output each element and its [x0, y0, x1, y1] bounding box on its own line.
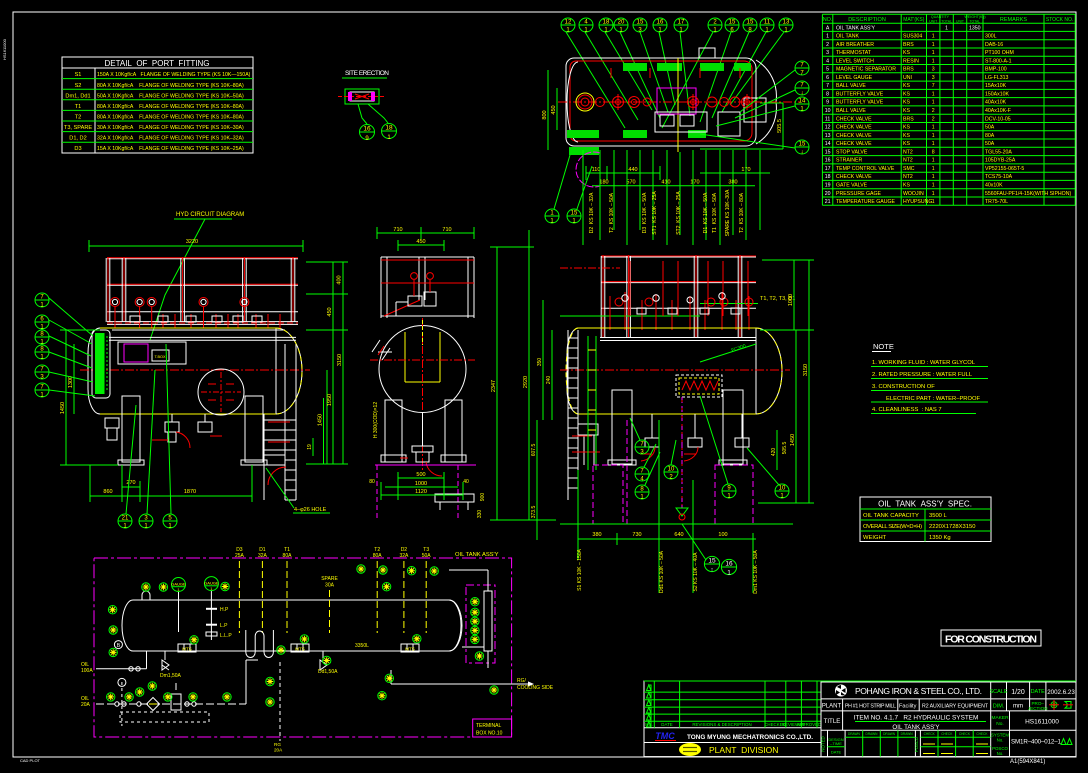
- svg-text:MAGNETIC SEPARATOR: MAGNETIC SEPARATOR: [836, 67, 896, 73]
- svg-text:NO.: NO.: [645, 722, 653, 727]
- svg-text:MTS: MTS: [295, 647, 305, 652]
- svg-text:3150: 3150: [803, 364, 809, 376]
- svg-text:1120: 1120: [415, 489, 427, 495]
- svg-text:2. RATED PRESSURE : WATER FULL: 2. RATED PRESSURE : WATER FULL: [872, 372, 973, 378]
- svg-text:14: 14: [825, 141, 831, 147]
- svg-text:150Ax10K: 150Ax10K: [985, 91, 1009, 97]
- svg-text:CHECK: CHECK: [924, 732, 936, 736]
- svg-text:4. CLEANLINESS : NAS 7: 4. CLEANLINESS : NAS 7: [872, 407, 942, 413]
- svg-text:CHECK: CHECK: [959, 732, 971, 736]
- svg-text:1950: 1950: [327, 394, 333, 406]
- svg-text:15: 15: [729, 20, 736, 26]
- svg-text:NT2: NT2: [903, 174, 913, 180]
- svg-text:UNIT: UNIT: [956, 20, 964, 24]
- svg-text:400: 400: [337, 275, 343, 284]
- svg-text:15: 15: [708, 558, 716, 565]
- svg-text:80: 80: [369, 479, 375, 485]
- svg-text:3: 3: [826, 50, 829, 56]
- svg-text:DRAWN: DRAWN: [866, 732, 879, 736]
- svg-text:80A: 80A: [283, 553, 293, 559]
- svg-text:800: 800: [542, 110, 548, 119]
- svg-text:3500 L: 3500 L: [929, 513, 948, 519]
- svg-text:BRS: BRS: [903, 67, 914, 73]
- svg-text:BUTTERFLY VALVE: BUTTERFLY VALVE: [836, 91, 884, 97]
- svg-text:1350: 1350: [969, 25, 981, 31]
- svg-text:SITE ERECTION: SITE ERECTION: [345, 70, 389, 77]
- svg-text:D1 KS 10K – 50A: D1 KS 10K – 50A: [703, 192, 709, 233]
- svg-text:ITEM NO. 4.1.7 R2 HYDRAULIC: ITEM NO. 4.1.7 R2 HYDRAULIC SYSTEM: [854, 715, 979, 722]
- svg-text:KS: KS: [903, 141, 910, 147]
- svg-text:373.5: 373.5: [531, 506, 537, 519]
- svg-text:13: 13: [825, 133, 831, 139]
- svg-text:DCV-10-05: DCV-10-05: [985, 116, 1011, 122]
- svg-text:STRAINER: STRAINER: [836, 158, 862, 164]
- svg-text:1: 1: [826, 34, 829, 40]
- svg-text:1. WORKING FLUID : WATER GLYCO: 1. WORKING FLUID : WATER GLYCOL: [872, 360, 976, 366]
- svg-text:RG: RG: [274, 742, 281, 747]
- svg-text:2: 2: [932, 116, 935, 122]
- svg-text:1: 1: [932, 158, 935, 164]
- svg-text:OIL TANK: OIL TANK: [836, 34, 860, 40]
- svg-text:40: 40: [463, 479, 469, 485]
- svg-text:mm: mm: [1013, 704, 1023, 710]
- svg-text:NO.: NO.: [823, 17, 833, 23]
- svg-text:640: 640: [674, 532, 683, 538]
- svg-text:QUANTITY: QUANTITY: [931, 15, 950, 19]
- svg-text:21: 21: [122, 516, 129, 522]
- svg-text:HYD CIRCUIT DIAGRAM: HYD CIRCUIT DIAGRAM: [176, 212, 244, 218]
- svg-text:KS: KS: [903, 133, 910, 139]
- svg-text:20: 20: [825, 191, 831, 197]
- svg-text:S2 KS 10K – 40A: S2 KS 10K – 40A: [693, 552, 699, 592]
- svg-text:DATE: DATE: [1031, 689, 1046, 695]
- svg-text:3350L: 3350L: [355, 643, 369, 649]
- svg-text:1: 1: [932, 50, 935, 56]
- svg-text:Dd1 KS 10K – 50A: Dd1 KS 10K – 50A: [659, 550, 665, 593]
- svg-text:1870: 1870: [184, 489, 196, 495]
- svg-text:1: 1: [932, 141, 935, 147]
- svg-text:2347: 2347: [491, 380, 497, 392]
- svg-text:DAB-16: DAB-16: [985, 42, 1003, 48]
- svg-text:80A: 80A: [373, 553, 383, 559]
- svg-text:UNIT: UNIT: [929, 20, 937, 24]
- svg-text:15: 15: [747, 20, 754, 26]
- svg-text:607.5: 607.5: [531, 444, 537, 457]
- svg-text:10: 10: [779, 486, 786, 492]
- svg-text:18: 18: [603, 20, 610, 26]
- svg-text:30A: 30A: [325, 583, 335, 589]
- svg-text:7: 7: [932, 83, 935, 89]
- svg-text:32A: 32A: [258, 553, 268, 559]
- svg-text:ST2 KS 10K – 25A: ST2 KS 10K – 25A: [676, 191, 682, 235]
- svg-text:2220X1728X3150: 2220X1728X3150: [929, 524, 975, 530]
- svg-text:TMC: TMC: [655, 731, 675, 741]
- svg-text:POSCO: POSCO: [914, 736, 919, 752]
- svg-text:OIL TANK ASS'Y: OIL TANK ASS'Y: [892, 724, 939, 731]
- svg-text:13: 13: [783, 20, 790, 26]
- svg-text:1: 1: [932, 42, 935, 48]
- svg-text:SM1R–400–012–1: SM1R–400–012–1: [1011, 739, 1062, 746]
- svg-text:D1, D2: D1, D2: [69, 136, 86, 142]
- svg-text:OIL TANK CAPACITY: OIL TANK CAPACITY: [863, 513, 919, 519]
- svg-text:100: 100: [718, 532, 727, 538]
- svg-text:PLANT DIVISION: PLANT DIVISION: [709, 745, 778, 755]
- svg-text:SPARE: SPARE: [321, 576, 338, 582]
- svg-text:T2: T2: [75, 115, 82, 121]
- svg-text:20A: 20A: [274, 748, 283, 753]
- svg-text:1: 1: [727, 570, 731, 577]
- svg-text:1: 1: [932, 125, 935, 131]
- svg-text:WOOJIN: WOOJIN: [903, 191, 924, 197]
- svg-text:A: A: [826, 25, 830, 31]
- svg-text:1: 1: [932, 34, 935, 40]
- svg-text:DRAWN: DRAWN: [883, 732, 896, 736]
- svg-text:500: 500: [416, 472, 425, 478]
- svg-text:REVISIONS & DESCRIPTION: REVISIONS & DESCRIPTION: [692, 722, 751, 727]
- svg-text:1: 1: [932, 191, 935, 197]
- svg-text:NOTE: NOTE: [873, 342, 894, 351]
- svg-text:1: 1: [932, 133, 935, 139]
- svg-text:OIL TANK ASS'Y: OIL TANK ASS'Y: [455, 552, 499, 558]
- svg-text:BRS: BRS: [903, 42, 914, 48]
- svg-text:1: 1: [932, 183, 935, 189]
- svg-text:THERMOSTAT: THERMOSTAT: [836, 50, 872, 56]
- svg-text:450: 450: [327, 307, 333, 316]
- svg-text:Dm1, Dd1: Dm1, Dd1: [65, 94, 90, 100]
- svg-text:2: 2: [826, 42, 829, 48]
- svg-text:T1 KS 10K – 50A: T1 KS 10K – 50A: [712, 192, 718, 233]
- svg-text:RESIN: RESIN: [903, 58, 919, 64]
- svg-text:18: 18: [825, 174, 831, 180]
- svg-text:KS: KS: [903, 100, 910, 106]
- svg-text:TONG MYUNG MECHATRONICS CO.,LT: TONG MYUNG MECHATRONICS CO.,LTD.: [687, 734, 813, 741]
- svg-text:KS: KS: [903, 91, 910, 97]
- svg-text:505.5: 505.5: [782, 442, 788, 455]
- svg-text:TOTAL: TOTAL: [969, 20, 980, 24]
- svg-text:T.BOX: T.BOX: [155, 355, 166, 359]
- svg-text:16: 16: [825, 158, 831, 164]
- svg-text:NT2: NT2: [903, 158, 913, 164]
- svg-text:420: 420: [771, 448, 777, 457]
- svg-text:CHECK VALVE: CHECK VALVE: [836, 125, 872, 131]
- svg-text:270: 270: [126, 480, 135, 486]
- svg-text:5560FAU-PF1/4-15K(WITH SIPHON): 5560FAU-PF1/4-15K(WITH SIPHON): [985, 191, 1071, 197]
- svg-text:40Ax10K: 40Ax10K: [985, 100, 1007, 106]
- svg-text:50A: 50A: [422, 553, 432, 559]
- svg-text:TITLE: TITLE: [824, 718, 841, 725]
- svg-text:L.L.P: L.L.P: [220, 633, 232, 639]
- svg-text:CHECK: CHECK: [976, 732, 988, 736]
- svg-text:1: 1: [932, 174, 935, 180]
- svg-text:19: 19: [307, 444, 313, 450]
- svg-text:BALL VALVE: BALL VALVE: [836, 83, 866, 89]
- svg-text:570: 570: [626, 180, 635, 186]
- svg-text:ST1 KS 10K – 25A: ST1 KS 10K – 25A: [652, 191, 658, 235]
- svg-text:150A X 10Kgf/cA FLANGE OF WE: 150A X 10Kgf/cA FLANGE OF WELDING TYPE (…: [97, 72, 251, 78]
- svg-text:860: 860: [103, 489, 112, 495]
- svg-text:POHANG IRON & STEEL CO., LTD.: POHANG IRON & STEEL CO., LTD.: [855, 686, 982, 696]
- svg-text:2920: 2920: [523, 376, 529, 388]
- svg-text:32A X 10Kgf/cA FLANGE OF WE: 32A X 10Kgf/cA FLANGE OF WELDING TYPE (K…: [97, 136, 244, 142]
- svg-text:R2 AUXILIARY EQUIPMENT: R2 AUXILIARY EQUIPMENT: [922, 704, 989, 710]
- svg-text:No.: No.: [996, 721, 1003, 727]
- svg-text:APPROVED: APPROVED: [797, 722, 821, 727]
- svg-text:80A X 10Kgf/cA FLANGE OF WE: 80A X 10Kgf/cA FLANGE OF WELDING TYPE (K…: [97, 104, 244, 110]
- svg-text:OIL TANK ASS'Y SPEC.: OIL TANK ASS'Y SPEC.: [878, 500, 972, 509]
- svg-text:440: 440: [628, 167, 637, 173]
- svg-text:KS: KS: [903, 125, 910, 131]
- svg-text:PT100 OHM: PT100 OHM: [985, 50, 1014, 56]
- svg-text:350: 350: [537, 358, 543, 367]
- svg-text:25A: 25A: [235, 553, 245, 559]
- svg-text:CHECK: CHECK: [941, 732, 953, 736]
- svg-text:S1 KS 10K – 150A: S1 KS 10K – 150A: [577, 548, 583, 590]
- svg-text:105DYB-25A: 105DYB-25A: [985, 158, 1016, 164]
- svg-text:40Ax10K-F: 40Ax10K-F: [985, 108, 1011, 114]
- svg-text:50A X 10Kgf/cA FLANGE OF WE: 50A X 10Kgf/cA FLANGE OF WELDING TYPE (K…: [97, 94, 244, 100]
- svg-text:19: 19: [825, 183, 831, 189]
- svg-text:KS: KS: [903, 108, 910, 114]
- svg-text:1: 1: [932, 91, 935, 97]
- svg-text:MTS: MTS: [405, 647, 415, 652]
- svg-text:10: 10: [668, 467, 675, 473]
- svg-text:180: 180: [599, 180, 608, 186]
- svg-text:80A X 10Kgf/cA FLANGE OF WE: 80A X 10Kgf/cA FLANGE OF WELDING TYPE (K…: [97, 115, 244, 121]
- svg-text:16: 16: [657, 20, 664, 26]
- svg-text:Facility: Facility: [899, 704, 917, 710]
- svg-text:1450: 1450: [60, 402, 66, 414]
- svg-text:MTS: MTS: [182, 647, 192, 652]
- svg-text:410: 410: [661, 180, 670, 186]
- svg-text:CHECK VALVE: CHECK VALVE: [836, 141, 872, 147]
- svg-text:Dm1 KS 10K – 50A: Dm1 KS 10K – 50A: [753, 550, 759, 594]
- svg-text:D3 KS 10K – 50A: D3 KS 10K – 50A: [642, 192, 648, 233]
- svg-text:DIM.: DIM.: [993, 704, 1005, 710]
- svg-text:KS: KS: [903, 83, 910, 89]
- svg-text:170: 170: [690, 180, 699, 186]
- svg-text:DATE: DATE: [661, 722, 672, 727]
- svg-text:1: 1: [932, 199, 935, 205]
- svg-text:21: 21: [825, 199, 831, 205]
- svg-text:WEIGHT(Kg): WEIGHT(Kg): [964, 15, 985, 19]
- svg-text:SCALE: SCALE: [989, 689, 1007, 695]
- svg-text:SPARE KS 10K–30A: SPARE KS 10K–30A: [725, 189, 731, 236]
- svg-text:450: 450: [551, 105, 557, 114]
- svg-text:1450: 1450: [318, 414, 324, 426]
- svg-text:240: 240: [546, 376, 552, 385]
- svg-text:T3, SPARE: T3, SPARE: [64, 125, 92, 131]
- svg-text:ST-800-A-1: ST-800-A-1: [985, 58, 1012, 64]
- svg-text:330: 330: [477, 510, 483, 519]
- svg-text:KS: KS: [903, 183, 910, 189]
- svg-text:KS: KS: [903, 50, 910, 56]
- svg-text:S2: S2: [75, 83, 82, 89]
- svg-text:16: 16: [363, 126, 371, 133]
- svg-text:TCS75-10A: TCS75-10A: [985, 174, 1013, 180]
- svg-text:1450: 1450: [790, 434, 796, 446]
- svg-text:50A: 50A: [985, 125, 995, 131]
- svg-text:9: 9: [826, 100, 829, 106]
- svg-text:3: 3: [932, 75, 935, 81]
- svg-text:WEIGHT: WEIGHT: [863, 535, 887, 541]
- svg-text:CHECK VALVE: CHECK VALVE: [836, 174, 872, 180]
- svg-text:30A X 10Kgf/cA FLANGE OF WE: 30A X 10Kgf/cA FLANGE OF WELDING TYPE (K…: [97, 125, 244, 131]
- svg-text:100A: 100A: [81, 668, 93, 674]
- svg-text:STOP VALVE: STOP VALVE: [836, 149, 868, 155]
- svg-text:A1(594X841): A1(594X841): [1010, 759, 1045, 765]
- svg-text:BRS: BRS: [903, 116, 914, 122]
- svg-text:3. CONSTRUCTION OF: 3. CONSTRUCTION OF: [872, 384, 935, 390]
- svg-text:COOLING SIDE: COOLING SIDE: [517, 685, 554, 691]
- svg-text:NOTED: NOTED: [821, 736, 826, 751]
- svg-text:20A: 20A: [81, 702, 91, 708]
- svg-text:8: 8: [826, 91, 829, 97]
- svg-text:17: 17: [825, 166, 831, 172]
- svg-text:2002.6.23: 2002.6.23: [1047, 689, 1075, 696]
- svg-text:T2 KS 10K – 80A: T2 KS 10K – 80A: [739, 192, 745, 233]
- svg-text:ELECTRIC PART : WATER–PROOF: ELECTRIC PART : WATER–PROOF: [886, 396, 981, 402]
- svg-text:10: 10: [825, 108, 831, 114]
- svg-text:S1: S1: [75, 72, 82, 78]
- svg-text:4–φ26 HOLE: 4–φ26 HOLE: [294, 507, 327, 513]
- svg-text:CHECK VALVE: CHECK VALVE: [836, 116, 872, 122]
- svg-text:TEMPERATURE GAUGE: TEMPERATURE GAUGE: [836, 199, 896, 205]
- svg-text:3: 3: [932, 67, 935, 73]
- svg-text:T2 KS 10K – 50A: T2 KS 10K – 50A: [609, 192, 615, 233]
- svg-text:LEVEL SWITCH: LEVEL SWITCH: [836, 58, 874, 64]
- svg-text:12: 12: [565, 20, 572, 26]
- svg-text:50A: 50A: [985, 141, 995, 147]
- svg-text:HS1611000: HS1611000: [2, 38, 7, 60]
- svg-text:RG/: RG/: [517, 678, 527, 684]
- svg-text:6: 6: [826, 75, 829, 81]
- svg-text:1: 1: [932, 166, 935, 172]
- svg-text:15Ax10K: 15Ax10K: [985, 83, 1007, 89]
- svg-text:TERMINAL: TERMINAL: [476, 723, 502, 729]
- svg-text:LG-FL313: LG-FL313: [985, 75, 1008, 81]
- svg-text:110: 110: [592, 167, 601, 173]
- svg-text:GAUGE: GAUGE: [171, 582, 186, 587]
- svg-text:BALL VALVE: BALL VALVE: [836, 108, 866, 114]
- svg-text:20: 20: [618, 20, 625, 26]
- svg-text:HS1611000: HS1611000: [1025, 719, 1059, 726]
- svg-text:16: 16: [725, 561, 733, 568]
- svg-text:15: 15: [825, 149, 831, 155]
- svg-text:TR75-70L: TR75-70L: [985, 199, 1008, 205]
- svg-text:11: 11: [825, 116, 830, 122]
- svg-text:80A: 80A: [985, 133, 995, 139]
- svg-text:3150: 3150: [337, 354, 343, 366]
- svg-text:CAD PLOT: CAD PLOT: [20, 758, 41, 763]
- svg-text:SUS304: SUS304: [903, 34, 922, 40]
- svg-text:15A X 10Kgf/cA FLANGE OF WE: 15A X 10Kgf/cA FLANGE OF WELDING TYPE (K…: [97, 146, 244, 152]
- svg-text:80A X 10Kgf/cA FLANGE OF WE: 80A X 10Kgf/cA FLANGE OF WELDING TYPE (K…: [97, 83, 244, 89]
- svg-text:UNI: UNI: [903, 75, 912, 81]
- svg-text:14: 14: [799, 99, 806, 105]
- svg-text:No.: No.: [997, 738, 1004, 743]
- svg-text:15: 15: [799, 142, 806, 148]
- svg-text:BOX NO.10: BOX NO.10: [476, 731, 503, 737]
- svg-text:11: 11: [764, 20, 771, 26]
- svg-text:730: 730: [632, 532, 641, 538]
- svg-text:TGL55-20A: TGL55-20A: [985, 149, 1012, 155]
- svg-text:Dm1,50A: Dm1,50A: [160, 673, 182, 679]
- svg-text:L.P: L.P: [220, 623, 228, 629]
- svg-text:D3: D3: [74, 146, 81, 152]
- svg-text:MAT'(KS): MAT'(KS): [903, 17, 924, 23]
- svg-text:PLANT: PLANT: [822, 704, 842, 710]
- svg-text:STOCK NO.: STOCK NO.: [1046, 17, 1073, 23]
- svg-text:CHECK VALVE: CHECK VALVE: [836, 133, 872, 139]
- svg-text:JECTION: JECTION: [1028, 706, 1048, 711]
- svg-text:D2 KS 10K – 32A: D2 KS 10K – 32A: [589, 192, 595, 233]
- svg-text:GATE VALVE: GATE VALVE: [836, 183, 868, 189]
- svg-text:300L: 300L: [985, 34, 997, 40]
- svg-text:1350 Kg: 1350 Kg: [929, 535, 951, 541]
- svg-text:710: 710: [393, 227, 402, 233]
- svg-text:DRAWN: DRAWN: [848, 732, 861, 736]
- svg-text:32A: 32A: [399, 553, 409, 559]
- svg-text:HYUPSUNG: HYUPSUNG: [903, 199, 932, 205]
- svg-text:BUTTERFLY VALVE: BUTTERFLY VALVE: [836, 100, 884, 106]
- svg-text:40x10K: 40x10K: [985, 183, 1003, 189]
- svg-text:2: 2: [932, 108, 935, 114]
- svg-text:BMP-100: BMP-100: [985, 67, 1007, 73]
- svg-text:1: 1: [945, 25, 948, 31]
- svg-text:AIR BREATHER: AIR BREATHER: [836, 42, 874, 48]
- svg-text:15: 15: [637, 20, 644, 26]
- svg-text:710: 710: [442, 227, 451, 233]
- svg-text:900: 900: [480, 493, 486, 502]
- svg-text:GAUGE: GAUGE: [204, 581, 219, 586]
- svg-text:15: 15: [571, 211, 578, 217]
- svg-text:↓: ↓: [801, 150, 804, 156]
- svg-text:17: 17: [678, 20, 685, 26]
- svg-text:7: 7: [826, 83, 829, 89]
- svg-text:DATE: DATE: [831, 750, 842, 755]
- svg-text:DETAIL OF PORT FITTING: DETAIL OF PORT FITTING: [104, 59, 209, 68]
- svg-text:12: 12: [825, 125, 831, 131]
- svg-text:1000: 1000: [415, 481, 427, 487]
- svg-text:FOR CONSTRUCTION: FOR CONSTRUCTION: [945, 634, 1037, 646]
- svg-text:OIL TANK ASS'Y: OIL TANK ASS'Y: [836, 25, 875, 31]
- svg-text:↓: ↓: [801, 91, 804, 97]
- svg-text:PRESSURE GAGE: PRESSURE GAGE: [836, 191, 882, 197]
- svg-text:DESCRIPTION: DESCRIPTION: [848, 17, 886, 23]
- svg-text:REMARKS: REMARKS: [1000, 17, 1028, 23]
- svg-text:↑: ↑: [710, 567, 713, 574]
- svg-text:5: 5: [826, 67, 829, 73]
- svg-text:1/20: 1/20: [1011, 689, 1025, 696]
- svg-text:T1: T1: [75, 104, 82, 110]
- svg-text:Dd1,50A: Dd1,50A: [318, 669, 338, 675]
- svg-text:–TIME: –TIME: [830, 741, 842, 746]
- svg-text:8: 8: [932, 149, 935, 155]
- svg-text:SMC: SMC: [903, 166, 915, 172]
- svg-text:1: 1: [932, 100, 935, 106]
- svg-text:505.5: 505.5: [777, 119, 783, 133]
- svg-text:NT2: NT2: [903, 149, 913, 155]
- svg-text:TEMP CONTROL VALVE: TEMP CONTROL VALVE: [836, 166, 895, 172]
- svg-text:1000: 1000: [788, 294, 794, 306]
- svg-text:18: 18: [385, 125, 393, 132]
- svg-text:3220: 3220: [186, 239, 198, 245]
- svg-text:No.: No.: [997, 751, 1004, 756]
- svg-text:OVERALL SIZE(W×D×H): OVERALL SIZE(W×D×H): [863, 524, 922, 530]
- svg-text:1: 1: [932, 58, 935, 64]
- svg-text:LEVEL GAUGE: LEVEL GAUGE: [836, 75, 873, 81]
- svg-text:MAKER: MAKER: [991, 715, 1009, 721]
